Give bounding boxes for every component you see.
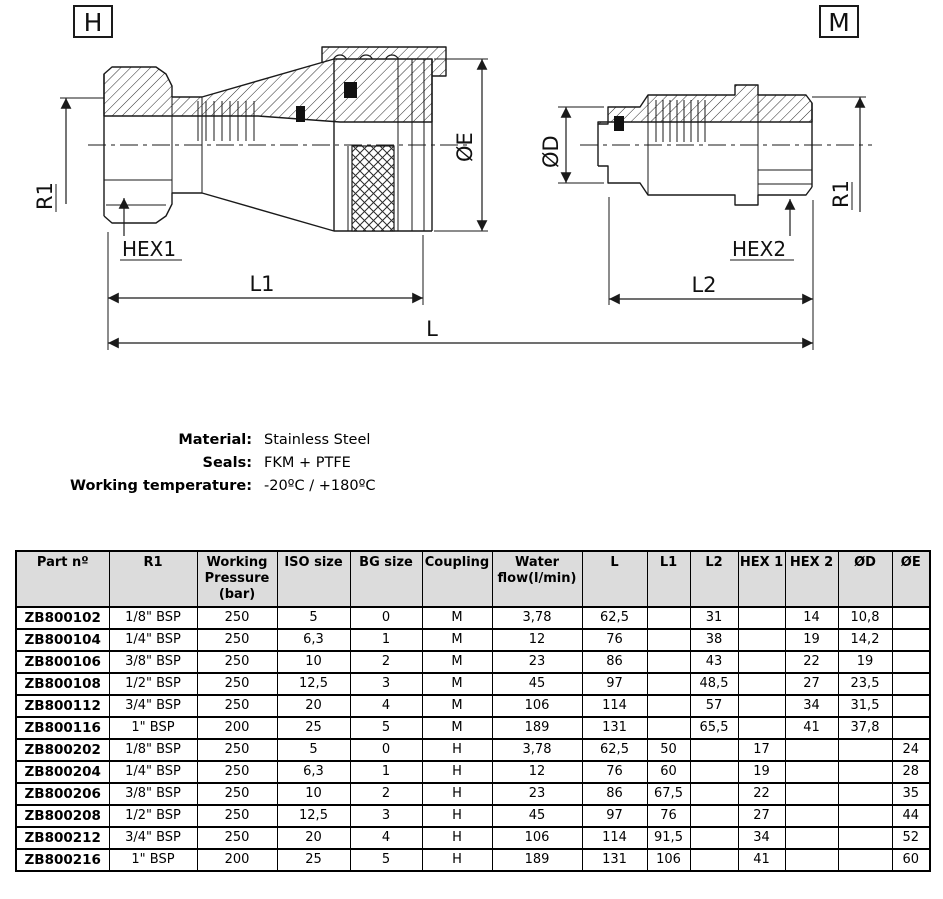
table-cell: 62,5 <box>582 607 647 629</box>
table-cell: 5 <box>350 849 422 871</box>
table-cell: H <box>422 827 492 849</box>
column-header: L2 <box>690 551 738 607</box>
table-cell: ZB800206 <box>16 783 109 805</box>
column-header: Part nº <box>16 551 109 607</box>
table-row: ZB8002041/4" BSP2506,31H1276601928 <box>16 761 930 783</box>
table-cell: 5 <box>277 739 350 761</box>
table-cell <box>892 651 930 673</box>
table-cell: 97 <box>582 673 647 695</box>
table-cell: 250 <box>197 673 277 695</box>
table-cell: ZB800208 <box>16 805 109 827</box>
dim-l1: L1 <box>249 272 274 296</box>
table-row: ZB8001081/2" BSP25012,53M459748,52723,5 <box>16 673 930 695</box>
table-body: ZB8001021/8" BSP25050M3,7862,5311410,8ZB… <box>16 607 930 871</box>
table-cell: 52 <box>892 827 930 849</box>
table-cell: 3,78 <box>492 607 582 629</box>
table-cell: 1" BSP <box>109 849 197 871</box>
table-cell <box>738 695 785 717</box>
table-cell: 106 <box>492 827 582 849</box>
table-cell: 3 <box>350 805 422 827</box>
table-cell: 3/4" BSP <box>109 827 197 849</box>
knurled-sleeve <box>352 146 394 231</box>
table-cell: 22 <box>785 651 838 673</box>
table-cell: 250 <box>197 783 277 805</box>
table-cell: 41 <box>738 849 785 871</box>
table-cell: 62,5 <box>582 739 647 761</box>
table-cell: 19 <box>785 629 838 651</box>
table-cell: 14 <box>785 607 838 629</box>
table-cell <box>892 717 930 739</box>
table-cell: 1/2" BSP <box>109 673 197 695</box>
datasheet-page: H M <box>0 0 943 899</box>
table-cell <box>892 607 930 629</box>
table-cell <box>738 673 785 695</box>
table-cell: M <box>422 695 492 717</box>
dim-od: ØD <box>539 135 563 168</box>
table-cell: M <box>422 673 492 695</box>
spec-value: Stainless Steel <box>264 432 370 448</box>
table-cell <box>690 849 738 871</box>
table-cell: 10,8 <box>838 607 892 629</box>
spec-value: FKM + PTFE <box>264 455 351 471</box>
table-cell: 19 <box>838 651 892 673</box>
table-cell: 4 <box>350 695 422 717</box>
table-cell <box>785 827 838 849</box>
table-cell: 28 <box>892 761 930 783</box>
table-cell: M <box>422 629 492 651</box>
table-cell: 25 <box>277 849 350 871</box>
table-cell: 0 <box>350 739 422 761</box>
table-row: ZB8002123/4" BSP250204H10611491,53452 <box>16 827 930 849</box>
table-cell: 0 <box>350 607 422 629</box>
table-cell <box>838 739 892 761</box>
table-cell: 76 <box>582 761 647 783</box>
spec-row-working-temperature: Working temperature:-20ºC / +180ºC <box>0 475 520 498</box>
table-cell <box>838 761 892 783</box>
table-cell: 12,5 <box>277 805 350 827</box>
column-header: HEX 2 <box>785 551 838 607</box>
table-cell <box>647 717 690 739</box>
column-header: Coupling <box>422 551 492 607</box>
table-cell: 34 <box>785 695 838 717</box>
right-view-tag: M <box>820 6 858 37</box>
table-cell: 27 <box>738 805 785 827</box>
table-cell: 250 <box>197 739 277 761</box>
spec-block: Material:Stainless Steel Seals:FKM + PTF… <box>0 429 520 498</box>
table-cell: 60 <box>892 849 930 871</box>
table-cell: 6,3 <box>277 761 350 783</box>
table-cell: 106 <box>647 849 690 871</box>
column-header: Working Pressure (bar) <box>197 551 277 607</box>
table-cell: 1/2" BSP <box>109 805 197 827</box>
table-cell: 41 <box>785 717 838 739</box>
table-cell: 45 <box>492 673 582 695</box>
dim-l: L <box>426 317 438 341</box>
table-cell: 12,5 <box>277 673 350 695</box>
table-cell <box>690 761 738 783</box>
table-cell: 3/8" BSP <box>109 651 197 673</box>
table-cell <box>785 739 838 761</box>
table-cell: 20 <box>277 695 350 717</box>
table-cell: 1 <box>350 761 422 783</box>
table-cell <box>838 849 892 871</box>
table-cell: ZB800204 <box>16 761 109 783</box>
table-cell: M <box>422 651 492 673</box>
table-cell: 189 <box>492 717 582 739</box>
table-row: ZB8001063/8" BSP250102M2386432219 <box>16 651 930 673</box>
dim-l2: L2 <box>691 273 716 297</box>
table-cell: 250 <box>197 827 277 849</box>
table-cell: 37,8 <box>838 717 892 739</box>
table-cell: 48,5 <box>690 673 738 695</box>
column-header: HEX 1 <box>738 551 785 607</box>
table-cell <box>647 673 690 695</box>
table-cell: 1/4" BSP <box>109 629 197 651</box>
spec-row-material: Material:Stainless Steel <box>0 429 520 452</box>
table-cell: ZB800216 <box>16 849 109 871</box>
table-cell: 1/4" BSP <box>109 761 197 783</box>
table-cell: ZB800112 <box>16 695 109 717</box>
spec-value: -20ºC / +180ºC <box>264 478 376 494</box>
table-cell <box>647 695 690 717</box>
table-row: ZB8002021/8" BSP25050H3,7862,5501724 <box>16 739 930 761</box>
table-cell <box>647 629 690 651</box>
table-cell: 60 <box>647 761 690 783</box>
table-cell: 4 <box>350 827 422 849</box>
table-cell: 31 <box>690 607 738 629</box>
table-cell: M <box>422 717 492 739</box>
part-table-wrapper: Part nºR1Working Pressure (bar)ISO sizeB… <box>15 550 931 872</box>
table-cell: 10 <box>277 783 350 805</box>
table-cell: ZB800116 <box>16 717 109 739</box>
table-cell: 45 <box>492 805 582 827</box>
table-cell: H <box>422 761 492 783</box>
table-cell: ZB800106 <box>16 651 109 673</box>
spec-label: Seals: <box>0 452 252 475</box>
overall-length-dimension: L <box>108 317 813 343</box>
table-cell: 34 <box>738 827 785 849</box>
table-cell: ZB800108 <box>16 673 109 695</box>
table-cell <box>738 651 785 673</box>
table-cell: ZB800202 <box>16 739 109 761</box>
table-row: ZB8001123/4" BSP250204M106114573431,5 <box>16 695 930 717</box>
table-cell: ZB800212 <box>16 827 109 849</box>
spec-row-seals: Seals:FKM + PTFE <box>0 452 520 475</box>
table-cell <box>647 607 690 629</box>
table-cell: 3 <box>350 673 422 695</box>
table-row: ZB8002081/2" BSP25012,53H4597762744 <box>16 805 930 827</box>
table-cell: 1/8" BSP <box>109 739 197 761</box>
table-cell: 114 <box>582 827 647 849</box>
table-cell: 86 <box>582 783 647 805</box>
table-cell: 19 <box>738 761 785 783</box>
table-cell: 250 <box>197 607 277 629</box>
dim-hex2: HEX2 <box>732 237 786 261</box>
table-cell: 57 <box>690 695 738 717</box>
table-cell: 5 <box>350 717 422 739</box>
table-cell <box>690 805 738 827</box>
table-cell: 250 <box>197 629 277 651</box>
column-header: ØD <box>838 551 892 607</box>
table-cell: 65,5 <box>690 717 738 739</box>
table-cell: 23 <box>492 651 582 673</box>
dim-r1-right: R1 <box>829 180 853 208</box>
table-cell: M <box>422 607 492 629</box>
table-cell <box>738 629 785 651</box>
left-view-tag: H <box>74 6 112 37</box>
table-cell <box>785 849 838 871</box>
table-cell <box>892 629 930 651</box>
table-cell <box>892 673 930 695</box>
table-cell: 106 <box>492 695 582 717</box>
table-cell: 5 <box>277 607 350 629</box>
table-cell: ZB800102 <box>16 607 109 629</box>
right-view-letter: M <box>828 8 850 37</box>
table-cell: 250 <box>197 695 277 717</box>
table-cell: 76 <box>647 805 690 827</box>
table-cell: 22 <box>738 783 785 805</box>
table-cell <box>785 761 838 783</box>
table-cell: 6,3 <box>277 629 350 651</box>
table-row: ZB8001041/4" BSP2506,31M1276381914,2 <box>16 629 930 651</box>
table-row: ZB8002161" BSP200255H1891311064160 <box>16 849 930 871</box>
table-cell: 3,78 <box>492 739 582 761</box>
column-header: ISO size <box>277 551 350 607</box>
table-cell: 35 <box>892 783 930 805</box>
dim-r1-left: R1 <box>33 182 57 210</box>
table-cell: 2 <box>350 651 422 673</box>
table-cell: 25 <box>277 717 350 739</box>
table-cell: 114 <box>582 695 647 717</box>
table-cell: 12 <box>492 629 582 651</box>
table-cell: 76 <box>582 629 647 651</box>
table-cell: 200 <box>197 849 277 871</box>
table-cell: 12 <box>492 761 582 783</box>
table-cell: 38 <box>690 629 738 651</box>
table-cell <box>647 651 690 673</box>
male-coupling-drawing: ØD R1 HEX2 L2 <box>539 85 872 350</box>
table-cell: 2 <box>350 783 422 805</box>
table-cell <box>838 783 892 805</box>
spec-label: Material: <box>0 429 252 452</box>
column-header: R1 <box>109 551 197 607</box>
spec-label: Working temperature: <box>0 475 252 498</box>
table-cell: H <box>422 849 492 871</box>
table-cell: 86 <box>582 651 647 673</box>
table-cell <box>838 827 892 849</box>
table-cell: 43 <box>690 651 738 673</box>
technical-drawing: H M <box>0 0 943 420</box>
table-cell <box>690 783 738 805</box>
table-cell: 14,2 <box>838 629 892 651</box>
table-cell <box>738 607 785 629</box>
table-row: ZB8001161" BSP200255M18913165,54137,8 <box>16 717 930 739</box>
table-cell: 91,5 <box>647 827 690 849</box>
table-cell: 3/8" BSP <box>109 783 197 805</box>
table-cell: ZB800104 <box>16 629 109 651</box>
column-header: Water flow(l/min) <box>492 551 582 607</box>
table-cell: 1/8" BSP <box>109 607 197 629</box>
table-row: ZB8002063/8" BSP250102H238667,52235 <box>16 783 930 805</box>
table-cell: H <box>422 805 492 827</box>
table-cell <box>690 827 738 849</box>
table-cell: 250 <box>197 805 277 827</box>
table-cell: 31,5 <box>838 695 892 717</box>
table-cell: H <box>422 783 492 805</box>
table-cell: 24 <box>892 739 930 761</box>
table-cell: 250 <box>197 651 277 673</box>
table-cell: 44 <box>892 805 930 827</box>
table-cell: 97 <box>582 805 647 827</box>
female-coupling-drawing: R1 HEX1 ØE L1 <box>33 47 488 350</box>
table-row: ZB8001021/8" BSP25050M3,7862,5311410,8 <box>16 607 930 629</box>
dim-oe: ØE <box>453 132 477 162</box>
table-cell <box>892 695 930 717</box>
table-cell <box>785 805 838 827</box>
table-cell: 1" BSP <box>109 717 197 739</box>
table-cell: 131 <box>582 849 647 871</box>
dim-hex1: HEX1 <box>122 237 176 261</box>
table-cell: 131 <box>582 717 647 739</box>
table-cell: 3/4" BSP <box>109 695 197 717</box>
table-cell <box>785 783 838 805</box>
left-view-letter: H <box>84 8 103 37</box>
table-cell: 200 <box>197 717 277 739</box>
table-cell: 23,5 <box>838 673 892 695</box>
table-cell: H <box>422 739 492 761</box>
table-cell <box>690 739 738 761</box>
column-header: L <box>582 551 647 607</box>
table-cell: 67,5 <box>647 783 690 805</box>
table-cell <box>738 717 785 739</box>
table-cell: 250 <box>197 761 277 783</box>
table-cell: 17 <box>738 739 785 761</box>
table-cell: 23 <box>492 783 582 805</box>
table-cell: 27 <box>785 673 838 695</box>
column-header: BG size <box>350 551 422 607</box>
table-cell: 50 <box>647 739 690 761</box>
table-header-row: Part nºR1Working Pressure (bar)ISO sizeB… <box>16 551 930 607</box>
table-cell: 189 <box>492 849 582 871</box>
table-cell <box>838 805 892 827</box>
column-header: L1 <box>647 551 690 607</box>
table-cell: 1 <box>350 629 422 651</box>
table-cell: 20 <box>277 827 350 849</box>
column-header: ØE <box>892 551 930 607</box>
table-cell: 10 <box>277 651 350 673</box>
part-table: Part nºR1Working Pressure (bar)ISO sizeB… <box>15 550 931 872</box>
